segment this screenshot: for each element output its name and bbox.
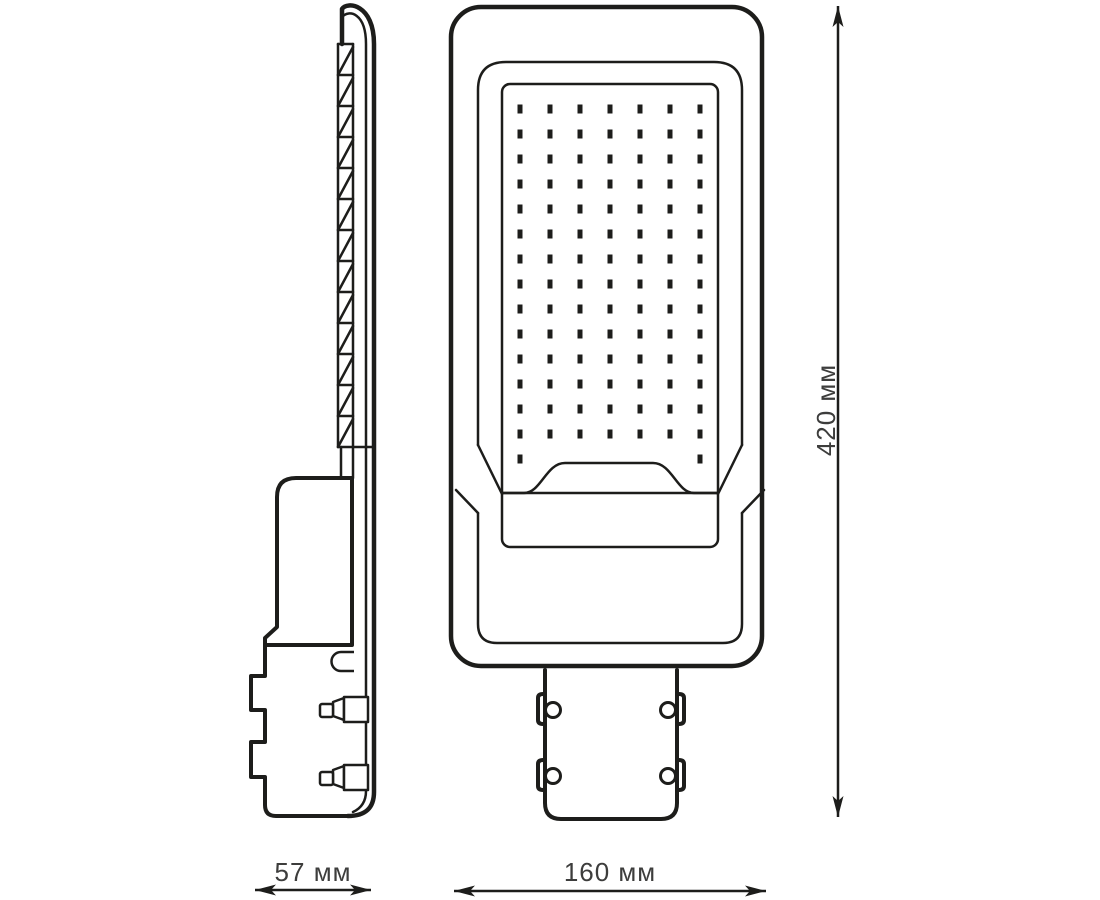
led (638, 430, 643, 439)
lamp-body-outline (342, 5, 374, 816)
inner-face-lower (478, 513, 742, 643)
led (518, 330, 523, 339)
led (638, 355, 643, 364)
hinge-tab (332, 652, 355, 671)
led (578, 205, 583, 214)
led (518, 230, 523, 239)
led (698, 355, 703, 364)
led (548, 105, 553, 114)
led (548, 280, 553, 289)
led (608, 155, 613, 164)
led (608, 355, 613, 364)
led (548, 305, 553, 314)
led (668, 130, 673, 139)
led (518, 280, 523, 289)
led (578, 330, 583, 339)
led (668, 205, 673, 214)
led (608, 305, 613, 314)
led (548, 180, 553, 189)
led (608, 105, 613, 114)
led (518, 430, 523, 439)
heatsink-fins (338, 44, 353, 478)
bolt-head (333, 766, 344, 788)
bolt-hole (661, 703, 676, 718)
led (638, 230, 643, 239)
led (548, 130, 553, 139)
led (548, 155, 553, 164)
drawing-canvas: 57 мм 160 мм 420 мм (0, 0, 1100, 900)
led (578, 430, 583, 439)
led (698, 305, 703, 314)
led (548, 405, 553, 414)
bolt-hole (661, 769, 676, 784)
led (668, 405, 673, 414)
led (668, 330, 673, 339)
led (548, 430, 553, 439)
led (548, 205, 553, 214)
led-panel (502, 84, 718, 547)
led (638, 280, 643, 289)
led (638, 330, 643, 339)
led (668, 105, 673, 114)
led (578, 155, 583, 164)
led (518, 380, 523, 389)
led (518, 405, 523, 414)
technical-drawing: 57 мм 160 мм 420 мм (0, 0, 1100, 900)
bolt-body (344, 765, 368, 790)
led (608, 230, 613, 239)
side-view (251, 5, 374, 816)
housing-outline (451, 7, 762, 666)
bolt-head (333, 698, 344, 720)
led (698, 155, 703, 164)
led (518, 130, 523, 139)
mounting-bracket-side (251, 645, 348, 816)
led (668, 355, 673, 364)
led (578, 255, 583, 264)
dimension-label-height: 420 мм (811, 364, 841, 456)
led (698, 430, 703, 439)
led (698, 455, 703, 464)
led (608, 130, 613, 139)
led (608, 380, 613, 389)
led (668, 155, 673, 164)
bolt-tip (320, 772, 333, 785)
led (608, 180, 613, 189)
led (638, 205, 643, 214)
led (698, 205, 703, 214)
led (608, 205, 613, 214)
led (578, 105, 583, 114)
mounting-bracket-front (538, 670, 684, 819)
front-view (451, 7, 764, 819)
led (578, 180, 583, 189)
bolt-hole (546, 769, 561, 784)
driver-box (265, 478, 352, 645)
led (638, 105, 643, 114)
led (518, 255, 523, 264)
led (638, 180, 643, 189)
led (518, 180, 523, 189)
clamp-bolt-bottom (320, 765, 368, 790)
clamp-bolt-top (320, 697, 368, 722)
dimension-front-width: 160 мм (454, 857, 766, 897)
led (698, 330, 703, 339)
led (668, 180, 673, 189)
led (578, 405, 583, 414)
led (698, 280, 703, 289)
led (668, 380, 673, 389)
led (668, 430, 673, 439)
panel-bump (502, 463, 718, 493)
dimension-side-width: 57 мм (255, 857, 371, 896)
led (668, 255, 673, 264)
led (548, 255, 553, 264)
led (698, 405, 703, 414)
led (698, 180, 703, 189)
led (548, 330, 553, 339)
led (518, 205, 523, 214)
bracket-outline (545, 670, 677, 819)
led (668, 280, 673, 289)
led (548, 380, 553, 389)
led (578, 230, 583, 239)
led (518, 155, 523, 164)
led (608, 430, 613, 439)
led (578, 130, 583, 139)
led (548, 230, 553, 239)
led-grid (518, 105, 703, 464)
bolt-hole (546, 703, 561, 718)
dimension-label-side-width: 57 мм (275, 857, 352, 887)
led (608, 255, 613, 264)
led (518, 305, 523, 314)
led (668, 305, 673, 314)
led (608, 280, 613, 289)
led (548, 355, 553, 364)
led (638, 255, 643, 264)
led (698, 255, 703, 264)
led (698, 380, 703, 389)
led (578, 355, 583, 364)
led (638, 305, 643, 314)
led (698, 130, 703, 139)
dimension-label-front-width: 160 мм (564, 857, 656, 887)
dimensions: 57 мм 160 мм 420 мм (255, 6, 844, 897)
led (578, 280, 583, 289)
dimension-height: 420 мм (811, 6, 844, 817)
led (518, 105, 523, 114)
led-panel-frame (502, 84, 718, 547)
led (608, 330, 613, 339)
led (578, 305, 583, 314)
led (578, 380, 583, 389)
led (698, 230, 703, 239)
bolt-tip (320, 704, 333, 717)
led (638, 380, 643, 389)
led (638, 405, 643, 414)
led (638, 155, 643, 164)
led (698, 105, 703, 114)
bolt-body (344, 697, 368, 722)
led (518, 355, 523, 364)
led (638, 130, 643, 139)
led (608, 405, 613, 414)
led (668, 230, 673, 239)
led (518, 455, 523, 464)
